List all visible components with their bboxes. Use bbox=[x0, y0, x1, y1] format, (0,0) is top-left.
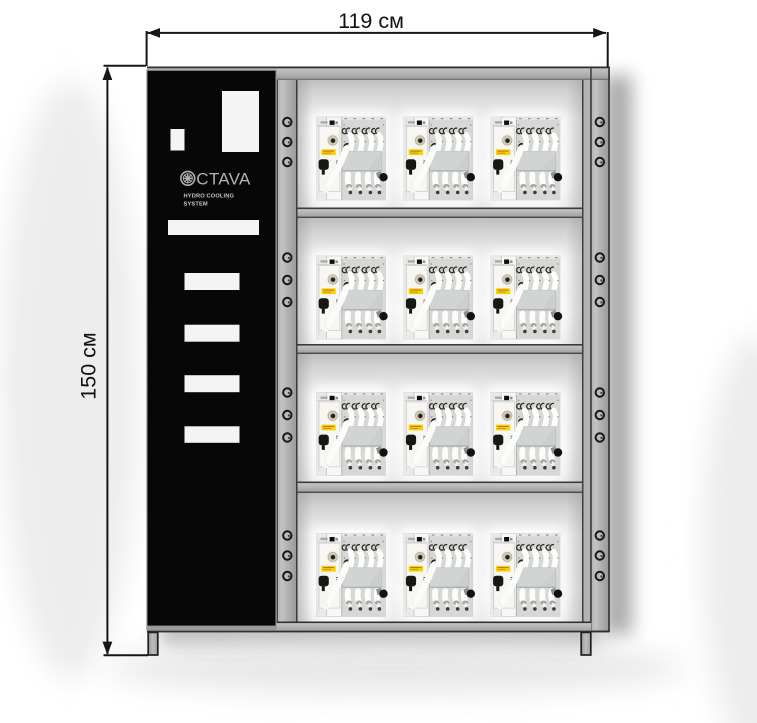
svg-text:CTAVA: CTAVA bbox=[196, 169, 251, 188]
svg-text:119 см: 119 см bbox=[338, 9, 404, 33]
svg-text:150 см: 150 см bbox=[77, 332, 101, 399]
svg-text:SYSTEM: SYSTEM bbox=[184, 201, 208, 207]
svg-text:HYDRO COOLING: HYDRO COOLING bbox=[184, 193, 235, 199]
